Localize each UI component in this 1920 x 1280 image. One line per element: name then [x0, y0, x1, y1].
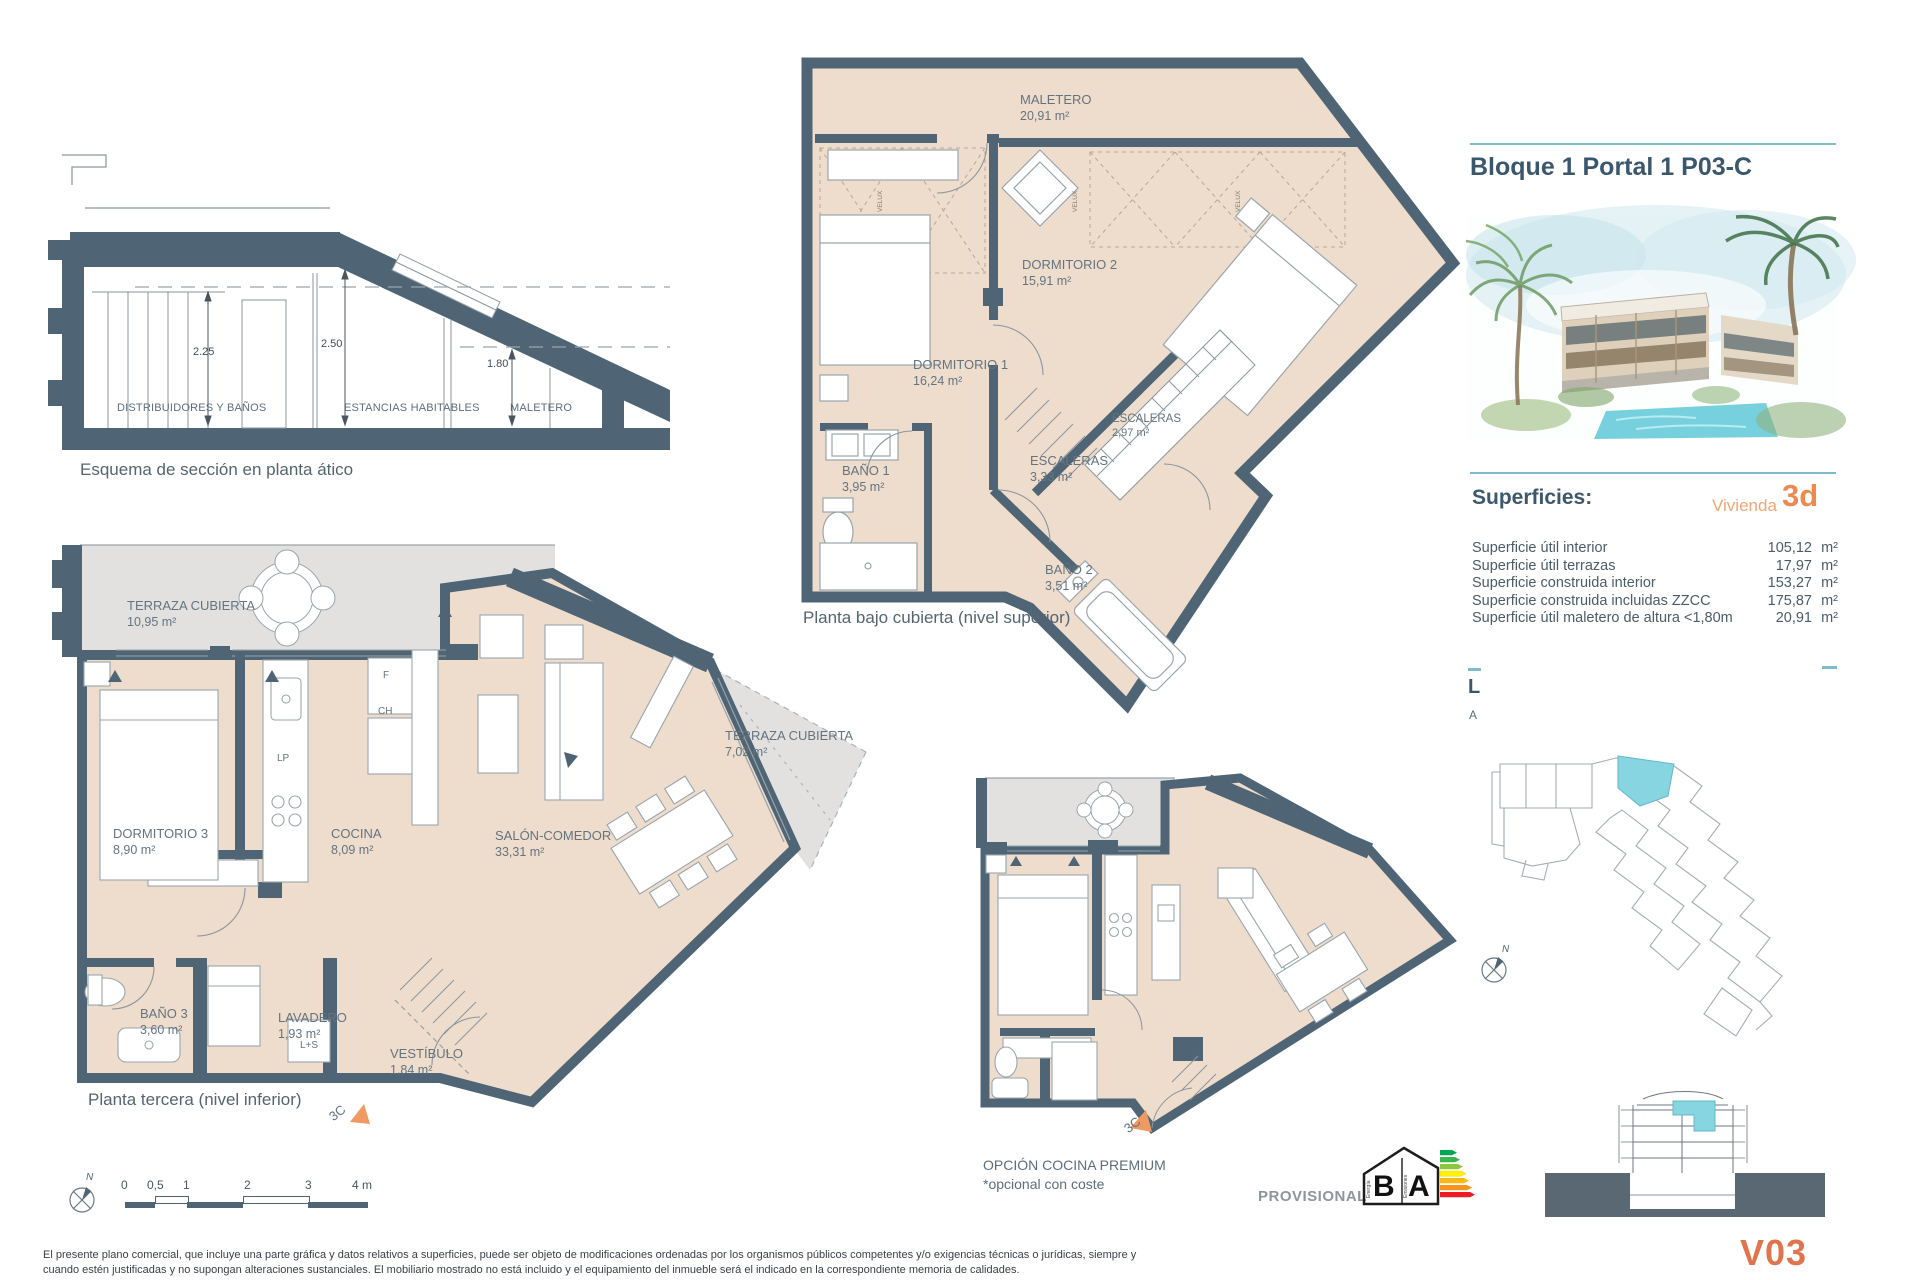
tag-f: F: [383, 670, 389, 681]
clipped-rule-left: [1468, 668, 1481, 671]
surface-row: Superficie útil interior105,12m²: [1472, 540, 1838, 558]
top-rule: [1470, 143, 1836, 145]
scale-label-2: 2: [244, 1178, 251, 1192]
surface-value: 175,87: [1758, 593, 1812, 611]
section-dim-left: 2.25: [193, 346, 214, 358]
surface-value: 105,12: [1758, 540, 1812, 558]
room-label-lavadero: LAVADERO1,93 m²: [278, 1010, 347, 1042]
section-zone-right: MALETERO: [510, 402, 572, 414]
lower-plan-caption: Planta tercera (nivel inferior): [88, 1090, 302, 1110]
site-compass-n: N: [1502, 944, 1509, 955]
tag-lp: LP: [277, 753, 289, 764]
room-label-terraza-1: TERRAZA CUBIERTA10,95 m²: [127, 598, 255, 630]
scale-label-1: 1: [183, 1178, 190, 1192]
room-label-escaleras-2: ESCALERAS2,97 m²: [1112, 412, 1181, 440]
disclaimer-line-1: El presente plano comercial, que incluye…: [43, 1248, 1136, 1263]
surface-unit: m²: [1812, 575, 1838, 593]
surface-row: Superficie construida interior153,27m²: [1472, 575, 1838, 593]
velux-tag: VELUX: [877, 190, 884, 212]
velux-tag: VELUX: [1072, 190, 1079, 212]
surface-row: Superficie útil terrazas17,97m²: [1472, 558, 1838, 576]
building-render-image: [1466, 215, 1838, 441]
clipped-heading-l: L: [1468, 676, 1480, 699]
disclaimer-line-2: cuando estén justificadas y no supongan …: [43, 1263, 1020, 1278]
surface-unit: m²: [1812, 593, 1838, 611]
surface-value: 153,27: [1758, 575, 1812, 593]
surface-value: 17,97: [1758, 558, 1812, 576]
compass-icon: [64, 1178, 104, 1222]
surface-label: Superficie útil interior: [1472, 540, 1758, 558]
surface-unit: m²: [1812, 558, 1838, 576]
vivienda-label: Vivienda: [1712, 496, 1777, 516]
room-label-bano-1: BAÑO 13,95 m²: [842, 463, 890, 495]
entry-arrow-3c: [350, 1104, 370, 1124]
scale-seg-light-1: [155, 1196, 189, 1204]
surface-unit: m²: [1812, 540, 1838, 558]
superficies-heading: Superficies:: [1472, 486, 1592, 510]
version-code: V03: [1740, 1232, 1807, 1274]
velux-tag: VELUX: [1235, 190, 1242, 212]
room-label-maletero: MALETERO20,91 m²: [1020, 92, 1092, 124]
surface-label: Superficie útil maletero de altura <1,80…: [1472, 610, 1758, 628]
section-schema-drawing: [30, 140, 670, 470]
room-label-bano-3: BAÑO 33,60 m²: [140, 1006, 188, 1038]
site-key-plan: [1470, 748, 1810, 1048]
clipped-rule-right: [1822, 666, 1837, 669]
surface-value: 20,91: [1758, 610, 1812, 628]
tag-ls: L+S: [300, 1040, 318, 1051]
scale-seg-light-2: [243, 1196, 310, 1204]
energy-arrows: [1440, 1150, 1475, 1197]
energy-letter-a: A: [1408, 1170, 1430, 1203]
room-label-dormitorio-1: DORMITORIO 116,24 m²: [913, 357, 1008, 389]
scale-label-3: 3: [305, 1178, 312, 1192]
room-label-salon: SALÓN-COMEDOR33,31 m²: [495, 828, 611, 860]
plan-sheet: 2.25 2.50 1.80 DISTRIBUIDORES Y BAÑOS ES…: [0, 0, 1920, 1280]
elevation-basement: [1630, 1173, 1735, 1209]
energy-axis-right: Emisiones: [1403, 1174, 1409, 1198]
premium-terrace: [976, 778, 1175, 848]
section-zone-left: DISTRIBUIDORES Y BAÑOS: [117, 402, 266, 414]
surface-row: Superficie construida incluidas ZZCC175,…: [1472, 593, 1838, 611]
premium-plan-drawing: [940, 690, 1460, 1170]
surface-label: Superficie construida incluidas ZZCC: [1472, 593, 1758, 611]
scale-label-4m: 4 m: [352, 1178, 372, 1192]
provisional-label: PROVISIONAL: [1258, 1188, 1367, 1205]
superficies-rule: [1470, 472, 1836, 474]
premium-caption-2: *opcional con coste: [983, 1175, 1104, 1194]
scale-label-05: 0,5: [147, 1178, 164, 1192]
page-title: Bloque 1 Portal 1 P03-C: [1470, 153, 1752, 182]
scale-seg-dark-1: [125, 1202, 155, 1208]
tag-ch: CH: [378, 706, 392, 717]
room-label-dormitorio-3: DORMITORIO 38,90 m²: [113, 826, 208, 858]
room-label-escaleras-1: ESCALERAS3,33 m²: [1030, 453, 1108, 485]
premium-caption-1: OPCIÓN COCINA PREMIUM: [983, 1156, 1166, 1175]
scale-seg-dark-3: [308, 1202, 368, 1208]
section-dim-mid: 2.50: [321, 338, 342, 350]
section-dim-right: 1.80: [487, 358, 508, 370]
elevation-key: [1545, 1085, 1825, 1217]
room-label-cocina: COCINA8,09 m²: [331, 826, 382, 858]
surface-row: Superficie útil maletero de altura <1,80…: [1472, 610, 1838, 628]
vivienda-code: 3d: [1782, 478, 1818, 514]
section-zone-mid: ESTANCIAS HABITABLES: [344, 402, 480, 414]
room-label-vestibulo: VESTÍBULO1,84 m²: [390, 1046, 463, 1078]
energy-axis-left: Energía: [1366, 1180, 1372, 1198]
surfaces-table: Superficie útil interior105,12m² Superfi…: [1472, 540, 1838, 628]
clipped-heading-a: A: [1469, 708, 1477, 722]
compass-n: N: [86, 1172, 93, 1183]
energy-letter-b: B: [1373, 1170, 1395, 1203]
scale-label-0: 0: [121, 1178, 128, 1192]
site-compass-icon: [1482, 957, 1506, 982]
energy-certificate-icon: B A Energía Emisiones: [1356, 1140, 1481, 1212]
highlighted-unit: [1618, 756, 1674, 806]
scale-seg-dark-2: [187, 1202, 243, 1208]
room-label-bano-2: BAÑO 23,51 m²: [1045, 562, 1093, 594]
surface-label: Superficie construida interior: [1472, 575, 1758, 593]
section-caption: Esquema de sección en planta ático: [80, 460, 353, 480]
room-label-terraza-2: TERRAZA CUBIERTA7,02 m²: [725, 728, 853, 760]
room-label-dormitorio-2: DORMITORIO 215,91 m²: [1022, 257, 1117, 289]
surface-label: Superficie útil terrazas: [1472, 558, 1758, 576]
surface-unit: m²: [1812, 610, 1838, 628]
